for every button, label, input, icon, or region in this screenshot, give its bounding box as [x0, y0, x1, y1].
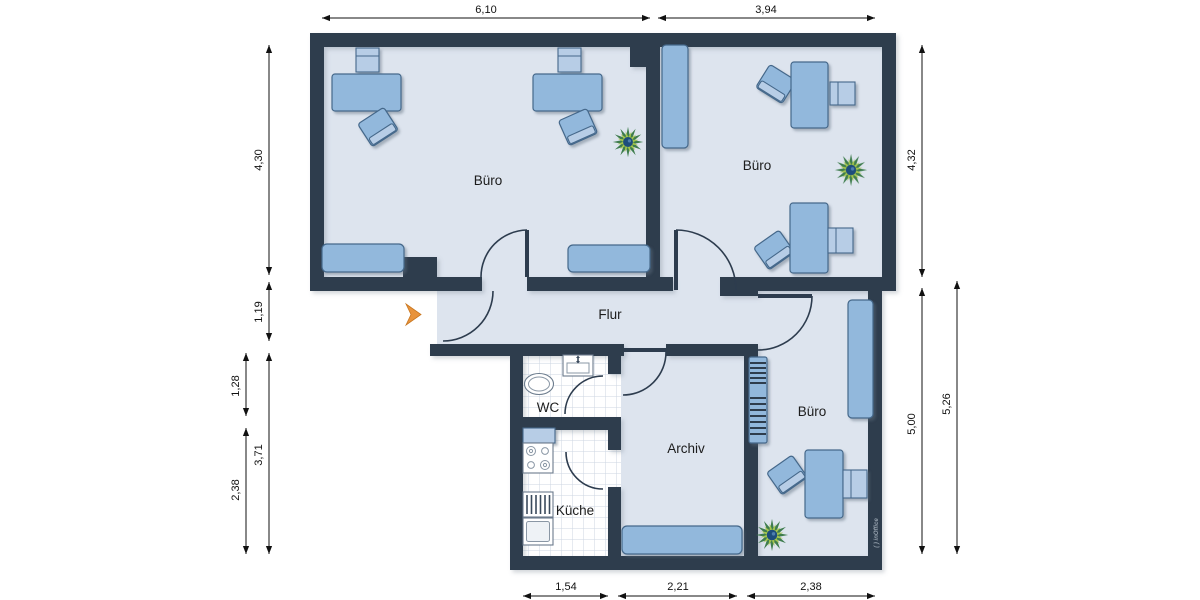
dimension-label: 6,10 [475, 4, 496, 16]
room-flur-floor [437, 291, 744, 344]
dimension-label: 2,21 [667, 581, 688, 593]
wall-archiv-buero-divider-top [744, 291, 758, 296]
dimension-label: 1,28 [230, 375, 242, 396]
room-label-archiv: Archiv [667, 441, 705, 456]
room-label-kueche: Küche [556, 503, 594, 518]
kitchen-sink-icon [523, 518, 553, 545]
wall-band-segment [310, 277, 482, 291]
room-label-buero-top-left: Büro [474, 173, 503, 188]
sink-icon [525, 374, 554, 395]
dimension-label: 2,38 [800, 581, 821, 593]
desk-cabinet [558, 48, 581, 72]
dimension-label: 4,32 [906, 149, 918, 170]
sideboard [322, 244, 404, 272]
dimension-label: 2,38 [230, 479, 242, 500]
sideboard [568, 245, 650, 272]
wall-top [310, 33, 896, 47]
wall-bottom [510, 556, 882, 570]
room-label-buero-top-right: Büro [743, 158, 772, 173]
wall-step-block [403, 257, 437, 277]
toilet-icon [563, 355, 593, 376]
desk [533, 74, 602, 111]
desk-cabinet [843, 470, 867, 498]
floor-plan: Büro Büro Flur WC Küche Archiv Büro 6,10… [0, 0, 1200, 600]
desk-cabinet [830, 82, 855, 105]
kitchen-counter [523, 428, 555, 443]
doorway-floor [482, 277, 527, 291]
room-label-buero-bottom-right: Büro [798, 404, 827, 419]
tall-cabinet [662, 45, 688, 148]
wall-block [720, 277, 748, 296]
wall-kueche-right-lower [608, 487, 621, 556]
dimension-label: 1,54 [555, 581, 576, 593]
dimension-label: 3,94 [755, 4, 776, 16]
wall-flur-bottom-left [430, 344, 624, 356]
desk [805, 450, 843, 518]
dimension-label: 5,00 [906, 413, 918, 434]
wall-shelf [749, 357, 767, 443]
dimension-label: 4,30 [253, 149, 265, 170]
desk-cabinet [828, 228, 853, 253]
wall-chimney-block [630, 47, 646, 67]
room-label-wc: WC [537, 400, 560, 415]
floor-plan-page: Büro Büro Flur WC Küche Archiv Büro 6,10… [0, 0, 1200, 600]
wall-wc-kueche-left [510, 344, 523, 570]
desk [790, 203, 828, 273]
wall-right-top [882, 33, 896, 291]
doorway-floor [744, 296, 758, 350]
doorway-floor [673, 277, 720, 291]
entrance-arrow-icon [406, 304, 421, 325]
kitchen-drainer-icon [523, 492, 553, 517]
dimension-label: 1,19 [253, 301, 265, 322]
watermark-logo: ( ) inOffice [874, 518, 880, 548]
wall-kueche-right-upper [608, 430, 621, 450]
desk-cabinet [356, 48, 379, 72]
wall-band-segment [527, 277, 673, 291]
tall-cabinet [848, 300, 873, 418]
desk [332, 74, 401, 111]
desk [791, 62, 828, 128]
sideboard [622, 526, 742, 554]
stove-icon [523, 443, 553, 473]
dimension-label: 5,26 [941, 393, 953, 414]
dimension-label: 3,71 [253, 444, 265, 465]
room-label-flur: Flur [598, 307, 622, 322]
wall-wc-right-upper [608, 344, 621, 374]
